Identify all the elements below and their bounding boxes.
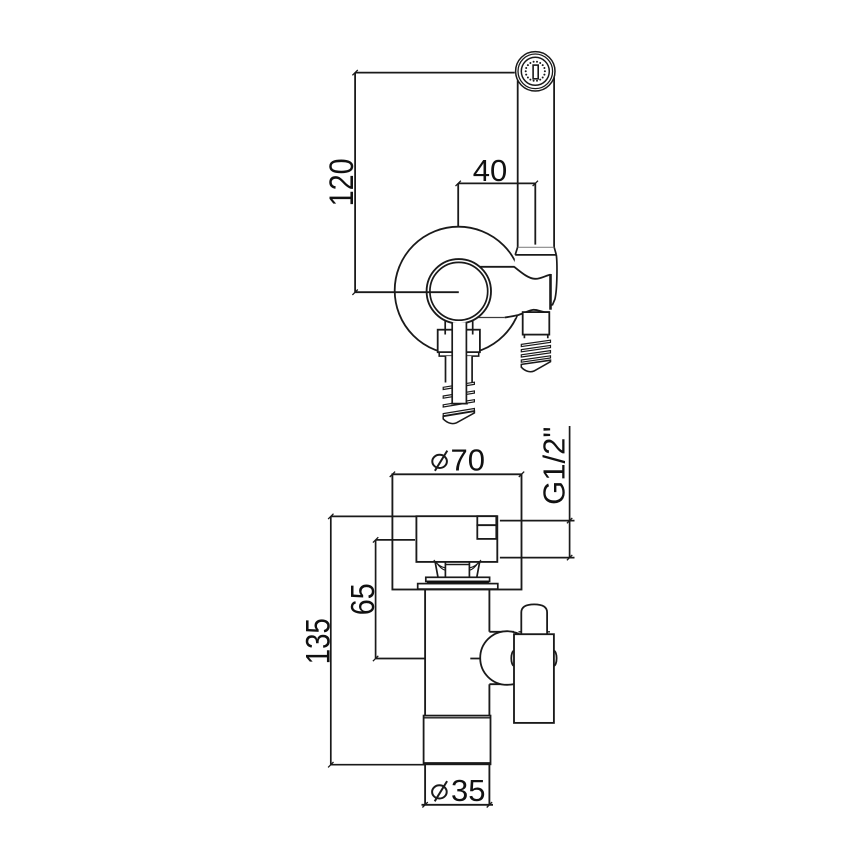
svg-text:35: 35 [451, 773, 485, 808]
svg-text:120: 120 [323, 158, 361, 206]
svg-text:G1/2": G1/2" [536, 427, 571, 505]
svg-text:40: 40 [473, 153, 507, 188]
svg-text:65: 65 [344, 583, 381, 615]
svg-text:135: 135 [300, 618, 338, 664]
svg-text:70: 70 [451, 443, 485, 478]
